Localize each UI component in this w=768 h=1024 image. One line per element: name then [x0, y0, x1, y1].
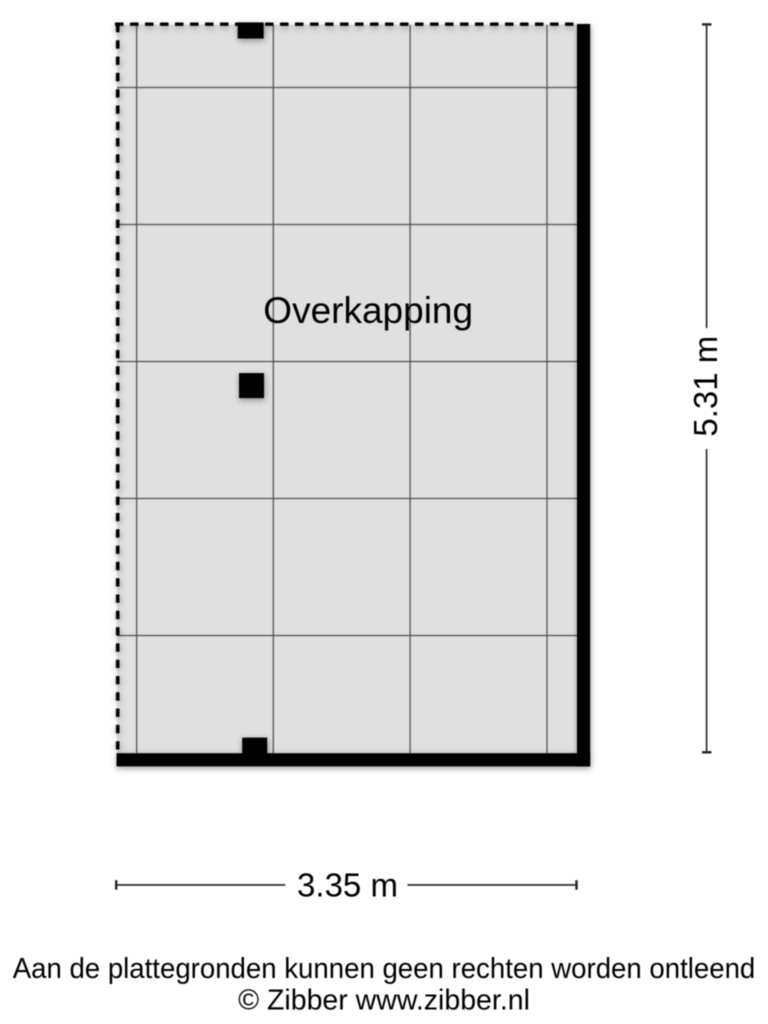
svg-text:© Zibber www.zibber.nl: © Zibber www.zibber.nl	[238, 985, 530, 1017]
svg-text:3.35 m: 3.35 m	[297, 867, 398, 904]
svg-text:5.31 m: 5.31 m	[687, 336, 724, 437]
svg-text:Overkapping: Overkapping	[263, 290, 473, 331]
svg-text:Aan de plattegronden kunnen ge: Aan de plattegronden kunnen geen rechten…	[13, 953, 756, 985]
